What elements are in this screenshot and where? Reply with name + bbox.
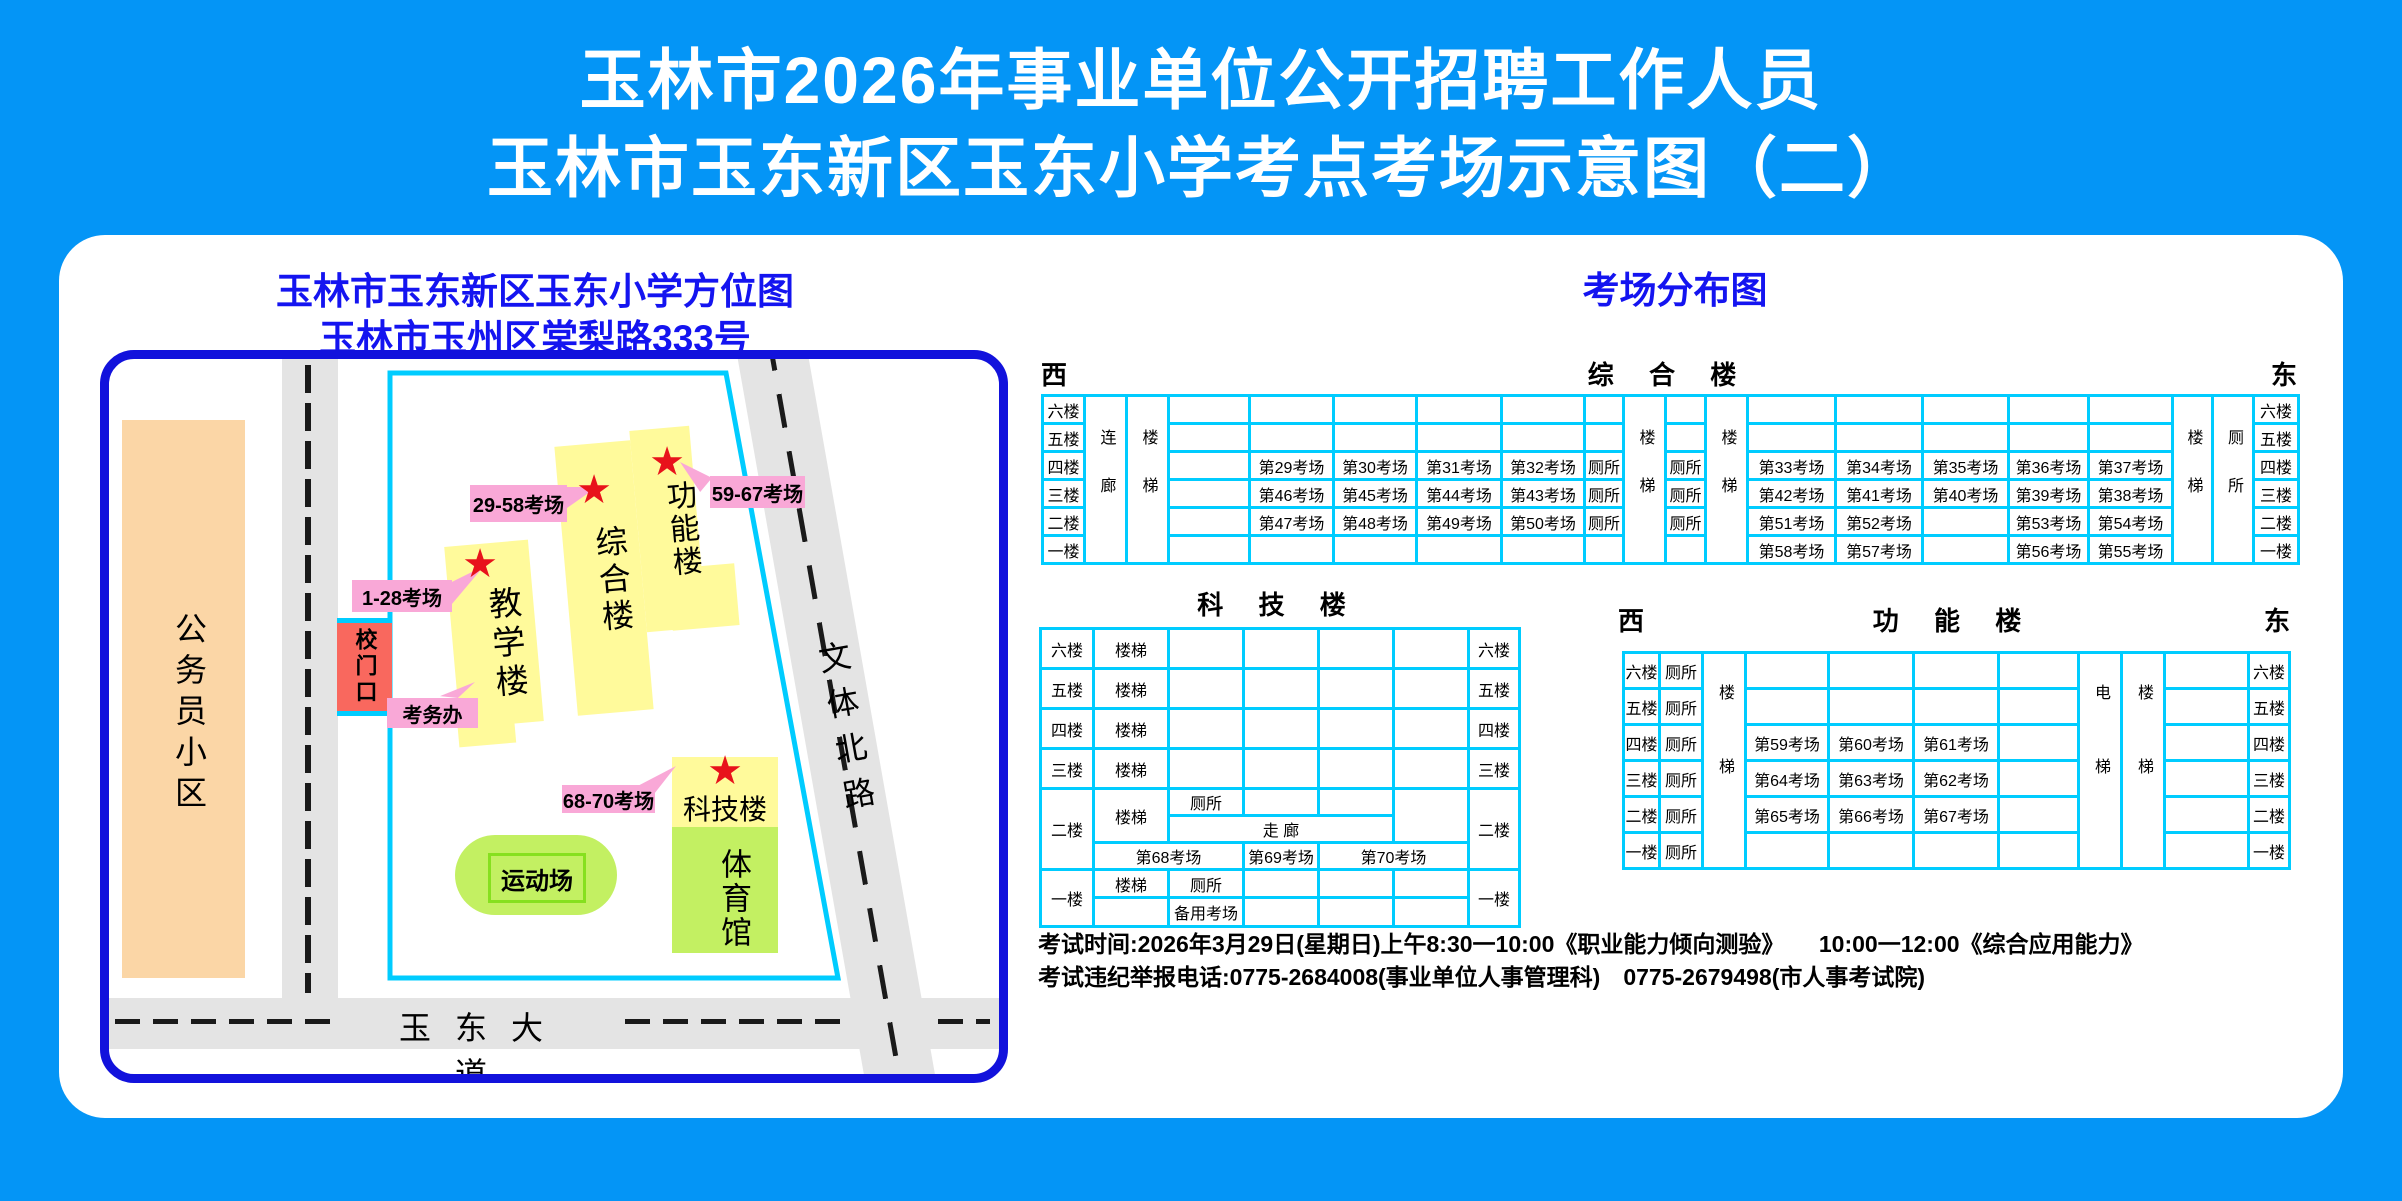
cell: 第43考场: [1502, 480, 1585, 508]
distribution-title: 考场分布图: [1575, 260, 1775, 314]
cell: [1585, 396, 1624, 424]
cell: 第40考场: [1923, 480, 2009, 508]
floor-label: 一楼: [1624, 833, 1660, 869]
cell: [1923, 508, 2009, 536]
cell: [1666, 536, 1706, 564]
floor-label: 三楼: [1041, 749, 1094, 789]
cell: [2165, 689, 2249, 725]
cell: [1829, 689, 1914, 725]
star-teaching: ★: [460, 544, 500, 584]
cell: 厕所: [1585, 480, 1624, 508]
cell: 第51考场: [1748, 508, 1836, 536]
school-boundary: [100, 350, 1008, 1083]
avenue-label: 玉东大道: [383, 1003, 583, 1083]
stairs-cell: 楼梯: [1703, 653, 1746, 869]
cell: [2165, 725, 2249, 761]
cell: 厕所: [1585, 452, 1624, 480]
stairs-cell: 楼梯: [1094, 749, 1169, 789]
cell: 第50考场: [1502, 508, 1585, 536]
cell: [1746, 653, 1829, 689]
cell: [1748, 396, 1836, 424]
cell: [1244, 669, 1319, 709]
floor-label: 六楼: [1624, 653, 1660, 689]
cell: [1169, 749, 1244, 789]
cell: [1250, 396, 1334, 424]
cell: [1169, 629, 1244, 669]
cell: [1334, 536, 1417, 564]
floor-label: 四楼: [1043, 452, 1085, 480]
poster-title: 玉林市2026年事业单位公开招聘工作人员 玉林市玉东新区玉东小学考点考场示意图（…: [0, 36, 2402, 212]
floor-label: 一楼: [1041, 870, 1094, 927]
cell: [1169, 480, 1250, 508]
cell: [2165, 797, 2249, 833]
cell: 第41考场: [1836, 480, 1923, 508]
cell: [1585, 536, 1624, 564]
callout-exam-office: 考务办: [387, 698, 478, 728]
cell: [1914, 833, 1999, 869]
cell: 第63考场: [1829, 761, 1914, 797]
cell: 厕所: [1585, 508, 1624, 536]
cell: [1244, 789, 1319, 816]
school-gate: 校门口: [337, 618, 392, 716]
floor-label: 二楼: [1041, 789, 1094, 870]
cell: [1319, 709, 1394, 749]
cell: 第46考场: [1250, 480, 1334, 508]
cell: 第53考场: [2009, 508, 2089, 536]
cell: [2165, 833, 2249, 869]
cell: 厕所: [1666, 508, 1706, 536]
cell: [1319, 898, 1394, 927]
cell: 第32考场: [1502, 452, 1585, 480]
backup-room-cell: 备用考场: [1169, 898, 1244, 927]
stairs-cell: 楼梯: [2173, 396, 2213, 564]
cell: 第34考场: [1836, 452, 1923, 480]
cell: [1169, 669, 1244, 709]
cell: 第37考场: [2089, 452, 2173, 480]
toilet-cell: 厕所: [1169, 870, 1244, 898]
floor-label: 六楼: [1041, 629, 1094, 669]
cell: [1746, 689, 1829, 725]
cell: [1914, 653, 1999, 689]
cell: [1169, 424, 1250, 452]
cell: 第67考场: [1914, 797, 1999, 833]
elevator-cell: 电梯: [2079, 653, 2122, 869]
floor-label: 二楼: [1469, 789, 1520, 870]
corridor-cell: 走 廊: [1169, 816, 1394, 843]
cell: [1394, 898, 1469, 927]
cell: 第57考场: [1836, 536, 1923, 564]
function-label: 功能楼: [655, 478, 707, 580]
cell: 第64考场: [1746, 761, 1829, 797]
complex-label: 综合楼: [585, 523, 640, 638]
cell: [1502, 536, 1585, 564]
gym-label: 体育馆: [711, 848, 756, 950]
cell: [1319, 669, 1394, 709]
floor-label: 六楼: [2254, 396, 2299, 424]
floor-label: 四楼: [1041, 709, 1094, 749]
cell: 第49考场: [1417, 508, 1502, 536]
cell: 第68考场: [1094, 843, 1244, 870]
cell: [1999, 761, 2079, 797]
cell: [1923, 536, 2009, 564]
location-map: 公务员小区 校门口 运动场 教学楼 综合楼 功能楼 科技楼 体育馆 ★ ★ ★ …: [100, 350, 1008, 1083]
map-title-line1: 玉林市玉东新区玉东小学方位图: [135, 268, 935, 315]
zonghe-name: 综 合 楼: [1588, 355, 1750, 392]
cell: [1394, 749, 1469, 789]
cell: [1334, 424, 1417, 452]
callout-rooms-68-70: 68-70考场: [562, 785, 655, 813]
gongneng-name: 功 能 楼: [1873, 601, 2035, 638]
cell: [1417, 396, 1502, 424]
cell: [1244, 749, 1319, 789]
gongneng-header: 西 功 能 楼 东: [1618, 608, 2290, 638]
callout-rooms-29-58: 29-58考场: [470, 485, 567, 522]
zonghe-east-label: 东: [2271, 355, 2297, 392]
cell: [1169, 508, 1250, 536]
floor-label: 二楼: [1043, 508, 1085, 536]
toilet-cell: 厕所: [2213, 396, 2254, 564]
zonghe-west-label: 西: [1041, 355, 1067, 392]
stairs-cell: 楼梯: [1094, 629, 1169, 669]
cell: [1394, 709, 1469, 749]
floor-label: 二楼: [2254, 508, 2299, 536]
floor-label: 五楼: [1041, 669, 1094, 709]
floor-label: 三楼: [2254, 480, 2299, 508]
zonghe-header: 西 综 合 楼 东: [1041, 362, 2297, 392]
cell: [2165, 653, 2249, 689]
stairs-cell: 楼梯: [1624, 396, 1666, 564]
gongneng-west-label: 西: [1618, 601, 1644, 638]
cell: [1829, 833, 1914, 869]
cell: [1319, 629, 1394, 669]
cell: [1394, 789, 1469, 843]
cell: [1394, 669, 1469, 709]
cell: [2089, 396, 2173, 424]
cell: 第39考场: [2009, 480, 2089, 508]
cell: [1394, 870, 1469, 898]
floor-label: 四楼: [1624, 725, 1660, 761]
cell: 第29考场: [1250, 452, 1334, 480]
floor-label: 四楼: [2254, 452, 2299, 480]
cell: [1169, 536, 1250, 564]
toilet-cell: 厕所: [1169, 789, 1244, 816]
cell: 第38考场: [2089, 480, 2173, 508]
keji-header: 科 技 楼: [1039, 592, 1518, 622]
stairs-cell: 楼梯: [1094, 789, 1169, 843]
floor-label: 五楼: [1469, 669, 1520, 709]
callout-rooms-1-28: 1-28考场: [352, 580, 452, 612]
toilet-cell: 厕所: [1660, 725, 1703, 761]
cell: [1666, 396, 1706, 424]
teaching-label: 教学楼: [477, 584, 535, 705]
cell: [1169, 396, 1250, 424]
report-phone-line: 考试违纪举报电话:0775-2684008(事业单位人事管理科) 0775-26…: [1038, 961, 2248, 994]
cell: [1244, 898, 1319, 927]
cell: [2165, 761, 2249, 797]
cell: [1319, 749, 1394, 789]
cell: 第65考场: [1746, 797, 1829, 833]
cell: [2009, 396, 2089, 424]
playground-label: 运动场: [501, 861, 573, 896]
keji-table: 六楼 楼梯 六楼 五楼 楼梯 五楼 四楼 楼梯 四楼 三楼 楼梯 三楼 二楼 楼…: [1039, 627, 1521, 928]
cell: [1319, 870, 1394, 898]
floor-label: 三楼: [1624, 761, 1660, 797]
cell: [1746, 833, 1829, 869]
school-gate-label: 校门口: [349, 628, 381, 706]
cell: 第66考场: [1829, 797, 1914, 833]
floor-label: 五楼: [1043, 424, 1085, 452]
floor-label: 三楼: [1043, 480, 1085, 508]
cell: [1836, 396, 1923, 424]
cell: [1334, 396, 1417, 424]
cell: [1244, 629, 1319, 669]
stairs-cell: 楼梯: [1094, 870, 1169, 898]
stairs-cell: 楼梯: [1094, 709, 1169, 749]
cell: 第52考场: [1836, 508, 1923, 536]
toilet-cell: 厕所: [1660, 833, 1703, 869]
cell: [1250, 424, 1334, 452]
cell: 第56考场: [2009, 536, 2089, 564]
cell: [1502, 396, 1585, 424]
floor-label: 四楼: [2249, 725, 2290, 761]
cell: [1748, 424, 1836, 452]
cell: 厕所: [1666, 452, 1706, 480]
toilet-cell: 厕所: [1660, 761, 1703, 797]
cell: [2009, 424, 2089, 452]
footer-notes: 考试时间:2026年3月29日(星期日)上午8:30一10:00《职业能力倾向测…: [1038, 928, 2248, 994]
cell: [1417, 424, 1502, 452]
cell: [1250, 536, 1334, 564]
toilet-cell: 厕所: [1660, 653, 1703, 689]
cell: 第55考场: [2089, 536, 2173, 564]
cell: [1999, 653, 2079, 689]
cell: 第59考场: [1746, 725, 1829, 761]
cell: [1999, 689, 2079, 725]
cell: 厕所: [1666, 480, 1706, 508]
star-complex: ★: [574, 470, 614, 510]
cell: [1585, 424, 1624, 452]
cell: [1244, 870, 1319, 898]
cell: 第54考场: [2089, 508, 2173, 536]
floor-label: 一楼: [2254, 536, 2299, 564]
cell: 第69考场: [1244, 843, 1319, 870]
cell: 第45考场: [1334, 480, 1417, 508]
corridor-link-cell: 连廊: [1085, 396, 1127, 564]
callout-rooms-59-67: 59-67考场: [710, 476, 805, 508]
cell: 第70考场: [1319, 843, 1469, 870]
community-label: 公务员小区: [166, 612, 212, 817]
floor-label: 一楼: [1043, 536, 1085, 564]
cell: 第60考场: [1829, 725, 1914, 761]
cell: 第48考场: [1334, 508, 1417, 536]
floor-label: 二楼: [2249, 797, 2290, 833]
toilet-cell: 厕所: [1660, 689, 1703, 725]
cell: [1169, 709, 1244, 749]
cell: 第47考场: [1250, 508, 1334, 536]
cell: 第31考场: [1417, 452, 1502, 480]
cell: 第62考场: [1914, 761, 1999, 797]
zonghe-table: 六楼 连廊 楼梯 楼梯 楼梯 楼梯 厕所 六楼 五楼 五楼: [1041, 394, 2300, 565]
cell: [1394, 629, 1469, 669]
floor-label: 六楼: [1469, 629, 1520, 669]
cell: [2089, 424, 2173, 452]
cell: [1169, 452, 1250, 480]
floor-label: 三楼: [2249, 761, 2290, 797]
stairs-cell: 楼梯: [1706, 396, 1748, 564]
star-function: ★: [647, 442, 687, 482]
map-title: 玉林市玉东新区玉东小学方位图 玉林市玉州区棠梨路333号: [135, 268, 935, 362]
cell: 第61考场: [1914, 725, 1999, 761]
cell: [1923, 396, 2009, 424]
floor-label: 五楼: [1624, 689, 1660, 725]
gongneng-table: 六楼 厕所 楼梯 电梯 楼梯 六楼 五楼 厕所 五楼 四楼 厕所 第59考场 第…: [1622, 651, 2291, 870]
floor-label: 五楼: [2254, 424, 2299, 452]
star-science: ★: [705, 751, 745, 791]
cell: 第58考场: [1748, 536, 1836, 564]
cell: [1999, 833, 2079, 869]
floor-label: 六楼: [1043, 396, 1085, 424]
floor-label: 二楼: [1624, 797, 1660, 833]
cell: 第30考场: [1334, 452, 1417, 480]
cell: 第33考场: [1748, 452, 1836, 480]
floor-label: 一楼: [1469, 870, 1520, 927]
floor-label: 六楼: [2249, 653, 2290, 689]
cell: [1244, 709, 1319, 749]
poster-title-line2: 玉林市玉东新区玉东小学考点考场示意图（二）: [0, 124, 2402, 212]
cell: [1094, 898, 1169, 927]
exam-time-line: 考试时间:2026年3月29日(星期日)上午8:30一10:00《职业能力倾向测…: [1038, 928, 2248, 961]
poster-title-line1: 玉林市2026年事业单位公开招聘工作人员: [0, 36, 2402, 124]
stairs-cell: 楼梯: [1127, 396, 1169, 564]
cell: [1319, 789, 1394, 816]
toilet-cell: 厕所: [1660, 797, 1703, 833]
floor-label: 四楼: [1469, 709, 1520, 749]
cell: 第36考场: [2009, 452, 2089, 480]
floor-label: 三楼: [1469, 749, 1520, 789]
stairs-cell: 楼梯: [2122, 653, 2165, 869]
cell: [1666, 424, 1706, 452]
cell: [1829, 653, 1914, 689]
cell: [1999, 797, 2079, 833]
cell: [1999, 725, 2079, 761]
cell: [1923, 424, 2009, 452]
keji-name: 科 技 楼: [1197, 585, 1359, 622]
playground-inner: 运动场: [488, 853, 586, 903]
cell: 第44考场: [1417, 480, 1502, 508]
gongneng-east-label: 东: [2264, 601, 2290, 638]
floor-label: 一楼: [2249, 833, 2290, 869]
cell: [1914, 689, 1999, 725]
cell: [1836, 424, 1923, 452]
science-label: 科技楼: [675, 788, 775, 828]
cell: [1502, 424, 1585, 452]
cell: 第35考场: [1923, 452, 2009, 480]
stairs-cell: 楼梯: [1094, 669, 1169, 709]
floor-label: 五楼: [2249, 689, 2290, 725]
cell: 第42考场: [1748, 480, 1836, 508]
cell: [1417, 536, 1502, 564]
